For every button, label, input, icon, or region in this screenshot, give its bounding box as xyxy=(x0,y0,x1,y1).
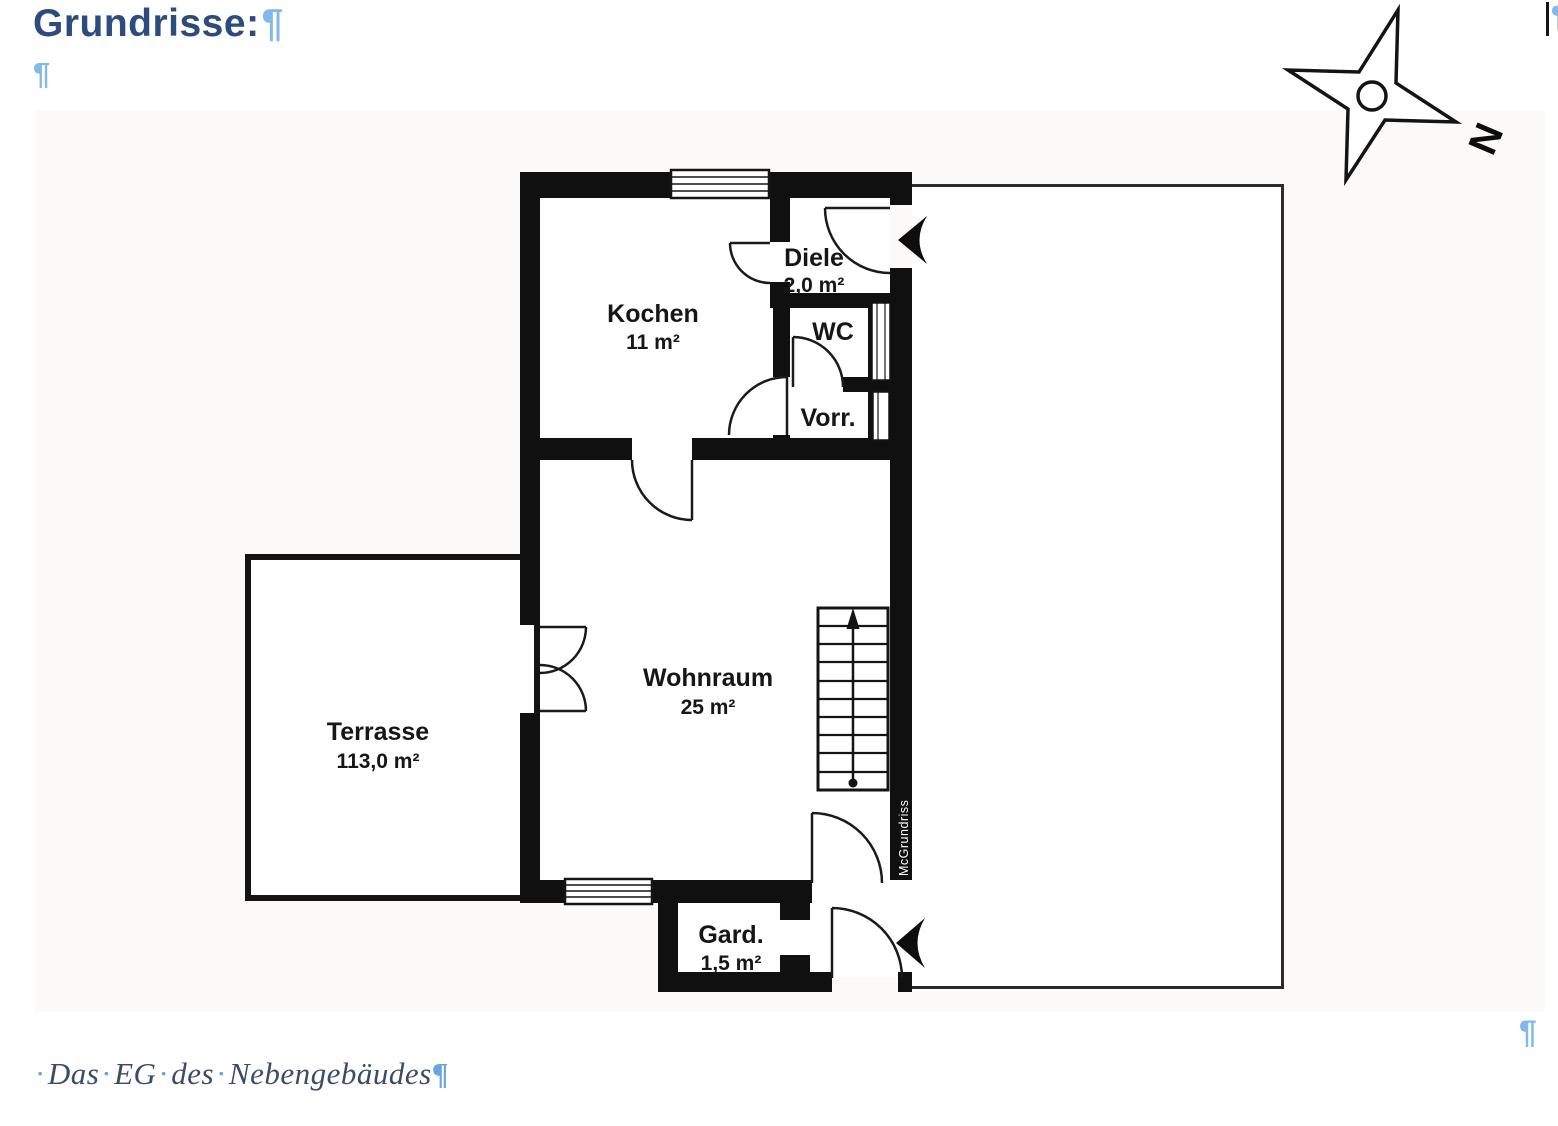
building-interior xyxy=(540,198,912,978)
wall-wc-left xyxy=(773,305,790,377)
plot-outline xyxy=(912,184,1284,989)
window-kochen-north xyxy=(671,170,769,198)
space-dot-icon: · xyxy=(33,1056,48,1091)
room-label-wohnraum: Wohnraum xyxy=(643,664,773,692)
stairs xyxy=(818,608,888,790)
window-wc-east xyxy=(872,303,890,380)
window-wohnraum-south xyxy=(565,879,652,904)
wall-wohnraum-top-right xyxy=(692,438,912,460)
wall-entry-stub xyxy=(898,972,912,992)
caption-word: Das xyxy=(48,1056,99,1091)
room-label-wc: WC xyxy=(812,318,854,346)
space-dot-icon: · xyxy=(214,1056,229,1091)
wall-wohnraum-bottom-left xyxy=(540,880,565,903)
wall-right-main xyxy=(890,268,912,880)
wall-gard-right-bottom-stub xyxy=(780,955,810,972)
wall-top-left xyxy=(520,172,671,198)
floor-plan-image[interactable]: McGrundriss N Kochen 11 m² Diele 2,0 m² … xyxy=(0,0,1558,1126)
caption-word: Nebengebäudes xyxy=(229,1056,432,1091)
space-dot-icon: · xyxy=(156,1056,171,1091)
room-label-gard: Gard. xyxy=(698,921,763,949)
room-area-wohnraum: 25 m² xyxy=(681,696,736,719)
wall-kochen-diele-upper xyxy=(770,172,790,242)
wall-gard-bottom xyxy=(658,972,832,992)
wall-wohnraum-bottom-right xyxy=(652,880,812,903)
watermark-text: McGrundriss xyxy=(897,800,911,876)
caption-word: des xyxy=(171,1056,214,1091)
wall-gard-right-top-stub xyxy=(780,903,810,920)
wall-wc-vorr xyxy=(843,377,870,392)
image-caption[interactable]: ·Das·EG·des·Nebengebäudes¶ xyxy=(33,1056,449,1092)
room-area-kochen: 11 m² xyxy=(626,331,680,354)
room-label-kochen: Kochen xyxy=(607,300,699,328)
wall-wohnraum-top-left xyxy=(540,438,632,460)
room-area-diele: 2,0 m² xyxy=(784,274,845,297)
wall-left-upper xyxy=(520,172,540,625)
room-area-gard: 1,5 m² xyxy=(701,952,762,975)
room-area-terrasse: 113,0 m² xyxy=(337,750,420,773)
room-label-terrasse: Terrasse xyxy=(327,718,429,746)
room-label-vorr: Vorr. xyxy=(800,404,855,432)
space-dot-icon: · xyxy=(99,1056,114,1091)
wall-right-top xyxy=(890,172,912,205)
pilcrow-icon: ¶ xyxy=(432,1056,449,1091)
wall-left-lower xyxy=(520,713,540,903)
caption-word: EG xyxy=(114,1056,156,1091)
window-vorr-east xyxy=(873,392,889,440)
room-label-diele: Diele xyxy=(784,244,844,272)
document-page: { "document": { "heading": "Grundrisse:"… xyxy=(0,0,1558,1126)
